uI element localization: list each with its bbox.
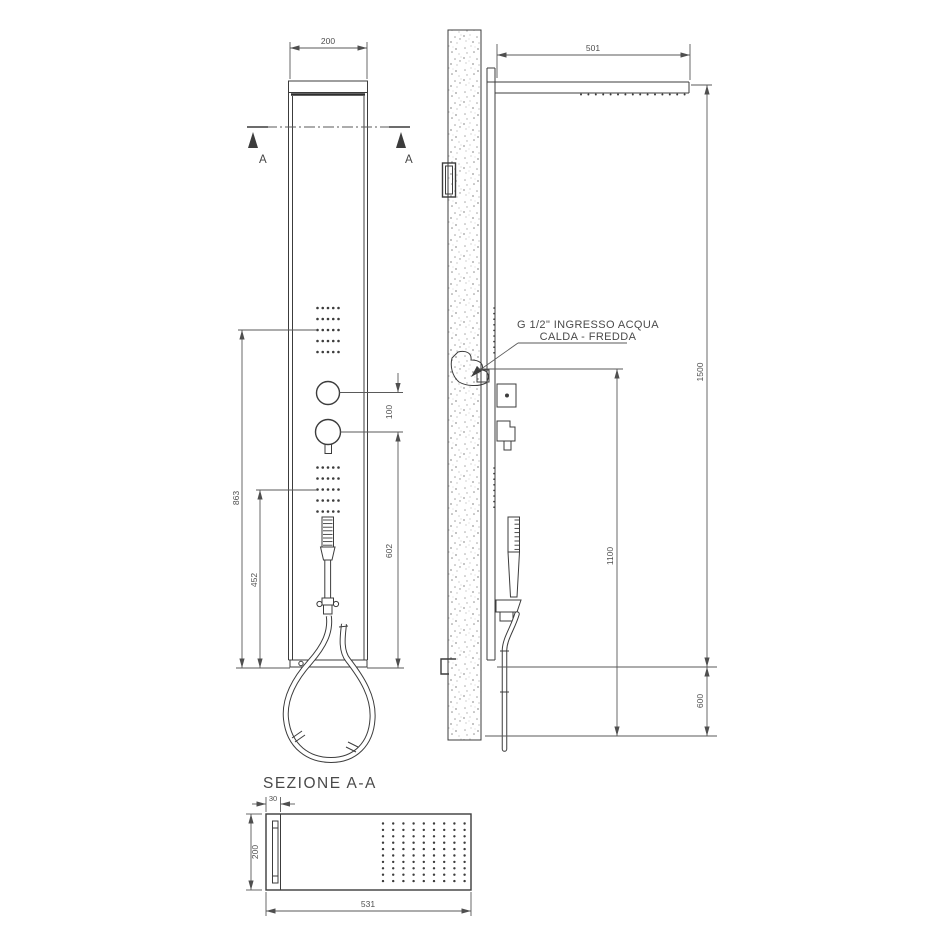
- jet-dot: [332, 477, 335, 480]
- arm-nozzle-dots: [580, 94, 686, 96]
- jet-dot: [332, 307, 335, 310]
- jet-dot: [463, 835, 465, 837]
- shower-hose-side: [500, 614, 517, 749]
- dim-600: 600: [695, 667, 707, 736]
- jet-dot: [321, 340, 324, 343]
- jet-dot: [433, 854, 435, 856]
- jet-dot: [463, 842, 465, 844]
- jet-dot: [392, 861, 394, 863]
- jet-dot: [423, 822, 425, 824]
- jet-dot: [382, 829, 384, 831]
- jet-dot: [402, 861, 404, 863]
- jet-dot: [412, 842, 414, 844]
- jet-dot: [382, 822, 384, 824]
- jet-dot: [443, 835, 445, 837]
- jet-dot: [412, 829, 414, 831]
- drawing-canvas: 200 A A: [0, 0, 950, 950]
- jet-dot: [402, 829, 404, 831]
- jet-dot: [332, 488, 335, 491]
- jet-dot: [617, 94, 619, 96]
- dim-100: 100: [384, 373, 398, 419]
- jet-dot: [580, 94, 582, 96]
- jet-dot: [602, 94, 604, 96]
- jet-dot: [327, 488, 330, 491]
- section-arrow-right: [396, 132, 406, 148]
- dim-1500: 1500: [695, 85, 707, 667]
- handle-ribs-side: [515, 520, 520, 549]
- jet-dot: [332, 510, 335, 513]
- inlet-label-line1: G 1/2" INGRESSO ACQUA: [517, 319, 659, 331]
- jet-dot: [443, 822, 445, 824]
- section-title: SEZIONE A-A: [263, 775, 377, 792]
- jet-dot: [433, 880, 435, 882]
- jet-dot: [412, 861, 414, 863]
- jet-dot: [493, 318, 495, 320]
- jet-dot: [443, 861, 445, 863]
- jet-dot: [382, 874, 384, 876]
- jet-dot: [392, 842, 394, 844]
- dim-label-452: 452: [249, 573, 259, 587]
- shower-hose-front: [286, 616, 373, 760]
- jet-dot: [493, 484, 495, 486]
- jet-dot: [684, 94, 686, 96]
- jet-dot: [321, 351, 324, 354]
- jet-dot: [412, 835, 414, 837]
- jet-dot: [392, 829, 394, 831]
- jet-dot: [392, 874, 394, 876]
- jet-dot: [412, 880, 414, 882]
- dim-531: 531: [266, 892, 471, 916]
- jet-dot: [382, 880, 384, 882]
- jet-dot: [327, 510, 330, 513]
- dim-label-30: 30: [269, 794, 277, 803]
- dim-452: 452: [249, 490, 317, 668]
- side-view: 501 G 1/2" INGRESSO ACQUA CALDA - FREDDA: [441, 30, 717, 749]
- dim-200-section: 200: [246, 814, 262, 890]
- dim-label-1500: 1500: [695, 362, 705, 381]
- jet-dot: [327, 466, 330, 469]
- dim-label-100: 100: [384, 405, 394, 419]
- section-view: SEZIONE A-A 30 200 53: [246, 775, 471, 916]
- jet-dot: [453, 854, 455, 856]
- jet-dot: [337, 477, 340, 480]
- jet-dot: [382, 842, 384, 844]
- inlet-label-line2: CALDA - FREDDA: [540, 331, 637, 343]
- jet-dot: [321, 318, 324, 321]
- jet-dot: [463, 848, 465, 850]
- jet-dot: [443, 867, 445, 869]
- jet-dot: [453, 829, 455, 831]
- panel-front: [289, 81, 368, 667]
- jet-dot: [392, 848, 394, 850]
- dim-label-1100: 1100: [605, 547, 615, 566]
- shower-panel-technical-drawing: 200 A A: [0, 0, 950, 950]
- jet-dot: [337, 318, 340, 321]
- jet-dot: [316, 318, 319, 321]
- jet-dot: [327, 477, 330, 480]
- shower-head-nozzle-grid: [382, 822, 466, 882]
- jet-dot: [433, 822, 435, 824]
- base-screw: [299, 661, 303, 665]
- jet-dot: [392, 822, 394, 824]
- diverter-knob: [316, 420, 404, 454]
- section-cut-line: A A: [247, 127, 413, 166]
- jet-dot: [493, 307, 495, 309]
- jet-dot: [423, 842, 425, 844]
- dim-501: 501: [497, 43, 690, 80]
- jet-dot: [423, 835, 425, 837]
- dim-602: 602: [384, 432, 398, 668]
- jet-dot: [595, 94, 597, 96]
- jet-dot: [443, 874, 445, 876]
- section-body: [266, 814, 471, 890]
- jet-dot: [337, 510, 340, 513]
- jet-dot: [332, 318, 335, 321]
- dim-label-200-section: 200: [250, 845, 260, 859]
- jet-dot: [337, 307, 340, 310]
- jet-dot: [382, 835, 384, 837]
- jet-dot: [392, 835, 394, 837]
- jet-dot: [453, 842, 455, 844]
- jet-dot: [453, 861, 455, 863]
- jet-dot: [463, 874, 465, 876]
- jet-dot: [337, 488, 340, 491]
- jet-dot: [402, 854, 404, 856]
- jet-dot: [402, 848, 404, 850]
- jet-dot: [337, 466, 340, 469]
- dim-label-863: 863: [231, 491, 241, 505]
- jet-dot: [433, 867, 435, 869]
- jet-dot: [392, 880, 394, 882]
- jet-dot: [327, 499, 330, 502]
- jet-dot: [327, 329, 330, 332]
- jet-dot: [327, 351, 330, 354]
- inlet-annotation: G 1/2" INGRESSO ACQUA CALDA - FREDDA: [471, 319, 659, 377]
- jet-dot: [332, 340, 335, 343]
- jet-dot: [610, 94, 612, 96]
- jet-dot: [337, 351, 340, 354]
- jet-dot: [321, 488, 324, 491]
- jet-dot: [382, 861, 384, 863]
- jet-dot: [392, 854, 394, 856]
- jet-dot: [316, 340, 319, 343]
- jet-dot: [423, 861, 425, 863]
- jet-dot: [493, 506, 495, 508]
- handle-ribs: [323, 520, 333, 545]
- dim-label-600: 600: [695, 694, 705, 708]
- jet-dot: [423, 867, 425, 869]
- jet-dot: [493, 467, 495, 469]
- jet-dot: [327, 307, 330, 310]
- jet-dot: [337, 499, 340, 502]
- body-jets-lower: [316, 466, 340, 513]
- jet-dot: [321, 510, 324, 513]
- jet-dot: [669, 94, 671, 96]
- jet-dot: [493, 330, 495, 332]
- front-view: 200 A A: [231, 36, 413, 760]
- shower-arm: [487, 82, 689, 96]
- jet-dot: [493, 501, 495, 503]
- jet-dot: [337, 340, 340, 343]
- jet-dot: [332, 466, 335, 469]
- jet-dot: [624, 94, 626, 96]
- jet-dot: [321, 466, 324, 469]
- dim-863: 863: [231, 330, 317, 668]
- jet-dot: [402, 874, 404, 876]
- jet-dot: [433, 861, 435, 863]
- jet-dot: [661, 94, 663, 96]
- jet-dot: [433, 842, 435, 844]
- jet-dot: [493, 490, 495, 492]
- jet-dot: [423, 874, 425, 876]
- section-marker-a-right: A: [405, 154, 413, 166]
- jet-dot: [647, 94, 649, 96]
- jet-dot: [443, 880, 445, 882]
- jet-dot: [321, 329, 324, 332]
- jet-dot: [332, 499, 335, 502]
- jet-dot: [332, 329, 335, 332]
- jet-dot: [463, 822, 465, 824]
- thermostat-knob: [317, 382, 404, 405]
- jet-dot: [463, 880, 465, 882]
- jet-dot: [443, 848, 445, 850]
- jet-dot: [463, 854, 465, 856]
- jet-dot: [316, 466, 319, 469]
- jet-dot: [316, 477, 319, 480]
- jet-dot: [433, 874, 435, 876]
- jet-dot: [412, 848, 414, 850]
- jet-dot: [493, 335, 495, 337]
- dim-label-501: 501: [586, 43, 600, 53]
- jet-dot: [412, 822, 414, 824]
- jet-dot: [433, 829, 435, 831]
- jet-dot: [654, 94, 656, 96]
- jet-dot: [493, 352, 495, 354]
- dim-1100: 1100: [605, 369, 617, 736]
- jet-dot: [453, 822, 455, 824]
- jet-dot: [639, 94, 641, 96]
- jet-dot: [402, 880, 404, 882]
- jet-dot: [412, 874, 414, 876]
- jet-dot: [453, 835, 455, 837]
- jet-dot: [412, 867, 414, 869]
- hand-shower-side: [496, 517, 521, 621]
- jet-dot: [327, 318, 330, 321]
- jet-dot: [453, 880, 455, 882]
- jet-dot: [463, 861, 465, 863]
- jet-dot: [493, 473, 495, 475]
- jet-dot: [382, 848, 384, 850]
- jet-dot: [402, 835, 404, 837]
- jet-dot: [316, 510, 319, 513]
- jet-dot: [453, 874, 455, 876]
- jet-dot: [423, 829, 425, 831]
- jet-dot: [316, 499, 319, 502]
- jet-dot: [443, 829, 445, 831]
- jet-dot: [321, 477, 324, 480]
- jet-dot: [337, 329, 340, 332]
- jet-dot: [402, 822, 404, 824]
- jet-dot: [453, 867, 455, 869]
- dim-30: 30: [252, 794, 295, 812]
- dim-label-602: 602: [384, 544, 394, 558]
- jet-dot: [382, 854, 384, 856]
- jet-dot: [321, 499, 324, 502]
- section-arrow-left: [248, 132, 258, 148]
- jet-dot: [493, 341, 495, 343]
- jet-dot: [632, 94, 634, 96]
- jet-dot: [327, 340, 330, 343]
- jet-dot: [493, 313, 495, 315]
- jet-dot: [493, 324, 495, 326]
- jet-dot: [493, 495, 495, 497]
- dim-label-531: 531: [361, 899, 375, 909]
- dim-width-200: 200: [290, 36, 367, 79]
- jet-dot: [463, 867, 465, 869]
- jet-dot: [332, 351, 335, 354]
- jet-dot: [443, 854, 445, 856]
- jet-dot: [321, 307, 324, 310]
- jet-dot: [463, 829, 465, 831]
- knob-boxes-side: [497, 384, 516, 450]
- jet-dot: [587, 94, 589, 96]
- section-marker-a-left: A: [259, 154, 267, 166]
- jet-dot: [423, 854, 425, 856]
- jet-dot: [433, 848, 435, 850]
- jet-dot: [402, 867, 404, 869]
- jet-dot: [423, 848, 425, 850]
- jet-dot: [676, 94, 678, 96]
- jet-dot: [316, 351, 319, 354]
- jet-dot: [412, 854, 414, 856]
- jet-dot: [392, 867, 394, 869]
- dim-label-200-top: 200: [321, 36, 335, 46]
- jet-dot: [443, 842, 445, 844]
- jet-dot: [433, 835, 435, 837]
- jet-dot: [493, 478, 495, 480]
- hand-shower-front: [317, 517, 339, 614]
- jet-dot: [316, 307, 319, 310]
- jet-dot: [423, 880, 425, 882]
- jet-dot: [453, 848, 455, 850]
- jet-dot: [382, 867, 384, 869]
- jet-dot: [493, 346, 495, 348]
- jet-dot: [402, 842, 404, 844]
- body-jets-upper: [316, 307, 340, 354]
